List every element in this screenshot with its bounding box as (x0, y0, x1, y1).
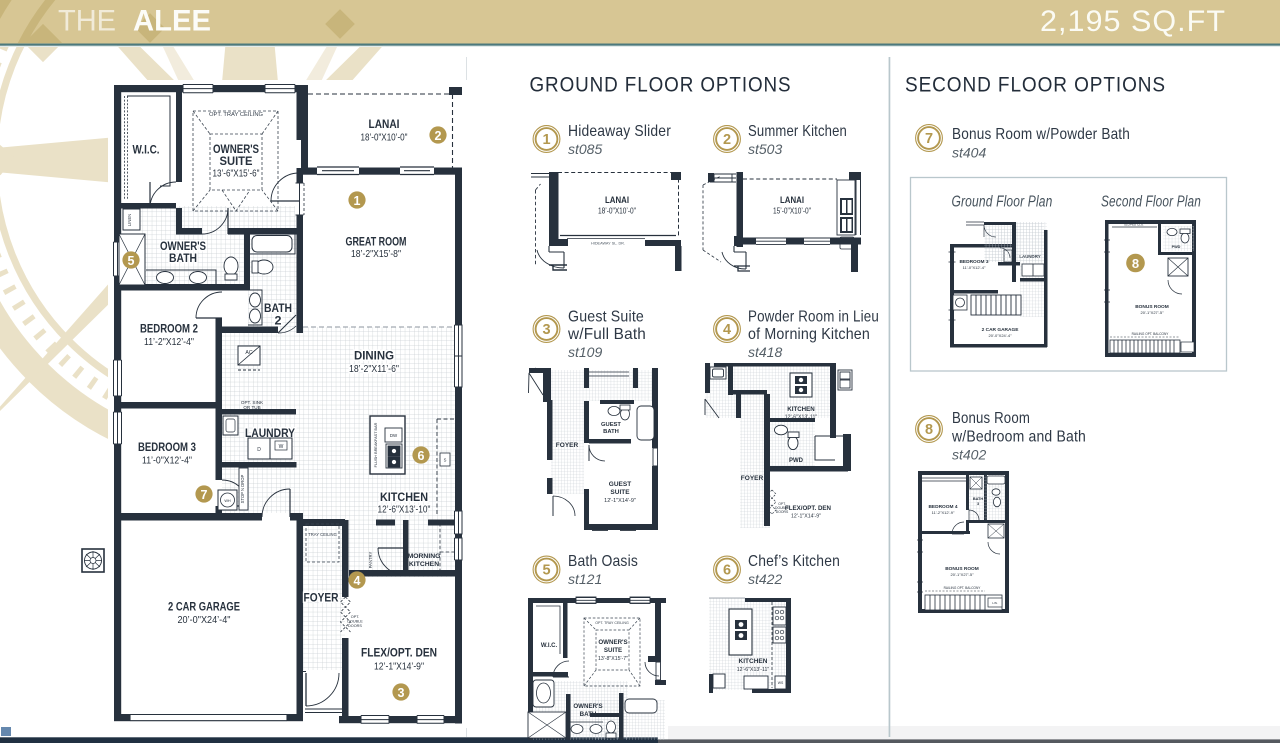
svg-text:6: 6 (723, 563, 731, 579)
svg-text:st404: st404 (952, 145, 986, 161)
svg-text:1: 1 (354, 194, 361, 208)
svg-text:Powder Room in Lieu: Powder Room in Lieu (748, 309, 879, 326)
svg-text:1: 1 (542, 132, 550, 148)
svg-text:OR TUB: OR TUB (243, 405, 260, 410)
svg-text:GREAT ROOM: GREAT ROOM (346, 237, 407, 249)
svg-text:11’-0"X12’-4": 11’-0"X12’-4" (142, 455, 192, 467)
svg-text:of Morning Kitchen: of Morning Kitchen (748, 326, 870, 343)
svg-text:WH: WH (224, 499, 231, 503)
svg-text:13'-8"X15'-7": 13'-8"X15'-7" (598, 656, 628, 662)
svg-text:Hideaway Slider: Hideaway Slider (568, 123, 671, 140)
svg-text:SUITE: SUITE (220, 156, 253, 168)
svg-text:6: 6 (418, 449, 425, 463)
svg-text:OWNER'S: OWNER'S (213, 144, 259, 156)
svg-text:SLOPED CLG.: SLOPED CLG. (1124, 223, 1144, 227)
svg-text:D: D (257, 447, 261, 453)
svg-text:20'-1"X27'-5": 20'-1"X27'-5" (1140, 310, 1164, 315)
svg-text:20'-0"X24'-4": 20'-0"X24'-4" (988, 333, 1012, 338)
svg-text:15’-0"X10’-0": 15’-0"X10’-0" (773, 206, 811, 216)
svg-text:12'-6"X13'-11": 12'-6"X13'-11" (785, 415, 818, 421)
svg-text:KITCHEN: KITCHEN (409, 561, 439, 568)
svg-text:LIN.: LIN. (992, 601, 998, 605)
svg-text:FLUSH BREAKFAST BAR: FLUSH BREAKFAST BAR (374, 422, 378, 467)
svg-text:BEDROOM 2: BEDROOM 2 (140, 324, 198, 336)
svg-text:Chef’s Kitchen: Chef’s Kitchen (748, 553, 840, 570)
svg-text:FLEX/OPT. DEN: FLEX/OPT. DEN (361, 648, 437, 660)
svg-text:5: 5 (128, 254, 135, 268)
svg-text:ALEE: ALEE (133, 5, 211, 38)
svg-text:w/Full Bath: w/Full Bath (567, 326, 646, 343)
svg-text:LANAI: LANAI (605, 195, 629, 205)
svg-text:BATH: BATH (169, 253, 197, 265)
svg-text:KITCHEN: KITCHEN (787, 406, 815, 413)
svg-text:Bonus Room: Bonus Room (952, 410, 1030, 427)
svg-text:3: 3 (398, 686, 405, 700)
svg-text:FOYER: FOYER (741, 475, 764, 482)
svg-text:18’-0"X10’-0": 18’-0"X10’-0" (598, 206, 636, 216)
svg-text:2: 2 (435, 129, 442, 143)
svg-text:4: 4 (354, 574, 361, 588)
svg-text:st085: st085 (568, 141, 602, 157)
svg-text:DOORS: DOORS (348, 624, 362, 628)
svg-text:4: 4 (723, 322, 731, 338)
svg-text:3: 3 (542, 322, 550, 338)
svg-text:RAILING OPT. BALCONY: RAILING OPT. BALCONY (944, 586, 982, 590)
svg-text:LANAI: LANAI (780, 195, 804, 205)
svg-text:FOYER: FOYER (304, 593, 340, 605)
svg-text:OWNER'S: OWNER'S (598, 639, 627, 646)
svg-text:BATH: BATH (973, 497, 984, 501)
svg-text:DINING: DINING (354, 351, 394, 363)
svg-text:11'-2"X12'-9": 11'-2"X12'-9" (932, 510, 955, 515)
svg-text:FOYER: FOYER (556, 442, 579, 449)
svg-text:12'-6"X13'-11": 12'-6"X13'-11" (737, 667, 770, 673)
svg-text:OWNER'S: OWNER'S (160, 241, 206, 253)
svg-text:7: 7 (925, 131, 933, 147)
svg-text:18’-2"X11’-6": 18’-2"X11’-6" (349, 363, 399, 375)
svg-text:RAILING OPT. BALCONY: RAILING OPT. BALCONY (1132, 332, 1170, 336)
svg-text:PANTRY: PANTRY (368, 551, 373, 568)
svg-text:SUITE: SUITE (604, 647, 622, 654)
svg-text:AC: AC (245, 350, 252, 356)
svg-text:18’-0"X10’-0": 18’-0"X10’-0" (361, 132, 408, 144)
svg-text:GUEST: GUEST (609, 481, 631, 488)
svg-text:BATH: BATH (580, 711, 597, 718)
svg-text:DOUBLE: DOUBLE (347, 620, 363, 624)
svg-text:PWD: PWD (1172, 245, 1181, 249)
svg-text:Bonus Room w/Powder Bath: Bonus Room w/Powder Bath (952, 126, 1130, 143)
svg-text:20'-1"X27'-5": 20'-1"X27'-5" (950, 572, 974, 577)
svg-text:OPT. TRAY CEILING: OPT. TRAY CEILING (595, 621, 629, 625)
svg-text:W: W (279, 444, 284, 450)
svg-text:12’-1"X14’-9": 12’-1"X14’-9" (374, 661, 424, 673)
svg-text:KITCHEN: KITCHEN (380, 492, 428, 504)
svg-text:20’-0"X24’-4": 20’-0"X24’-4" (178, 614, 231, 626)
svg-text:st402: st402 (952, 447, 986, 463)
svg-text:HIDEAWAY SL. DR.: HIDEAWAY SL. DR. (591, 242, 625, 246)
svg-text:S: S (444, 458, 447, 463)
svg-text:2 CAR GARAGE: 2 CAR GARAGE (168, 602, 240, 614)
svg-text:MORNING: MORNING (408, 553, 441, 560)
svg-text:2,195 SQ.FT: 2,195 SQ.FT (1040, 5, 1226, 38)
svg-text:FLEX/OPT. DEN: FLEX/OPT. DEN (785, 505, 832, 512)
svg-text:st422: st422 (748, 571, 782, 587)
svg-text:st503: st503 (748, 141, 782, 157)
svg-text:BEDROOM 3: BEDROOM 3 (138, 442, 196, 454)
svg-text:st109: st109 (568, 344, 602, 360)
svg-text:3: 3 (977, 502, 979, 506)
svg-text:Guest Suite: Guest Suite (568, 309, 644, 326)
svg-text:KITCHEN: KITCHEN (739, 658, 768, 665)
svg-text:SECOND FLOOR OPTIONS: SECOND FLOOR OPTIONS (905, 74, 1166, 97)
svg-text:11'-0"X12'-4": 11'-0"X12'-4" (963, 265, 986, 270)
svg-text:OWNER'S: OWNER'S (573, 703, 602, 710)
svg-text:THE: THE (58, 5, 116, 38)
svg-text:DOORS: DOORS (776, 510, 789, 514)
svg-text:2: 2 (723, 132, 731, 148)
svg-text:2: 2 (275, 316, 282, 328)
svg-text:STOP N DROP: STOP N DROP (240, 474, 245, 503)
svg-text:GROUND FLOOR OPTIONS: GROUND FLOOR OPTIONS (530, 74, 792, 97)
svg-text:12’-6"X13’-10": 12’-6"X13’-10" (378, 504, 431, 516)
svg-text:st418: st418 (748, 344, 782, 360)
svg-text:DW: DW (390, 433, 398, 438)
svg-text:LINEN: LINEN (127, 214, 132, 226)
svg-text:BATH: BATH (603, 429, 619, 435)
svg-text:WS: WS (778, 681, 784, 685)
svg-text:Second Floor Plan: Second Floor Plan (1101, 194, 1201, 211)
svg-text:5: 5 (542, 563, 550, 579)
svg-text:TRAY CEILING: TRAY CEILING (308, 532, 337, 537)
svg-text:7: 7 (201, 488, 208, 502)
svg-text:PWD: PWD (789, 458, 804, 464)
svg-text:8: 8 (1132, 256, 1139, 271)
svg-text:SUITE: SUITE (610, 489, 630, 496)
svg-text:Ground Floor Plan: Ground Floor Plan (952, 194, 1053, 211)
svg-text:12'-1"X14'-9": 12'-1"X14'-9" (791, 514, 821, 520)
svg-text:W.I.C.: W.I.C. (133, 145, 160, 157)
svg-text:13’-6"X15’-6": 13’-6"X15’-6" (213, 168, 260, 180)
svg-text:LANAI: LANAI (369, 119, 400, 131)
svg-text:OPT.: OPT. (351, 615, 359, 619)
svg-text:W.I.C.: W.I.C. (541, 643, 558, 649)
svg-text:w/Bedroom and Bath: w/Bedroom and Bath (951, 429, 1086, 446)
svg-text:Summer Kitchen: Summer Kitchen (748, 123, 847, 140)
svg-text:BATH: BATH (264, 303, 292, 315)
svg-text:OPT. TRAY CEILING: OPT. TRAY CEILING (209, 112, 264, 118)
svg-text:GUEST: GUEST (601, 422, 621, 428)
svg-text:st121: st121 (568, 571, 602, 587)
svg-text:8: 8 (925, 422, 933, 438)
svg-text:18’-2"X15’-8": 18’-2"X15’-8" (351, 248, 401, 260)
svg-text:11’-2"X12’-4": 11’-2"X12’-4" (144, 336, 194, 348)
svg-text:12'-1"X14'-9": 12'-1"X14'-9" (604, 498, 636, 504)
svg-text:Bath Oasis: Bath Oasis (568, 553, 638, 570)
